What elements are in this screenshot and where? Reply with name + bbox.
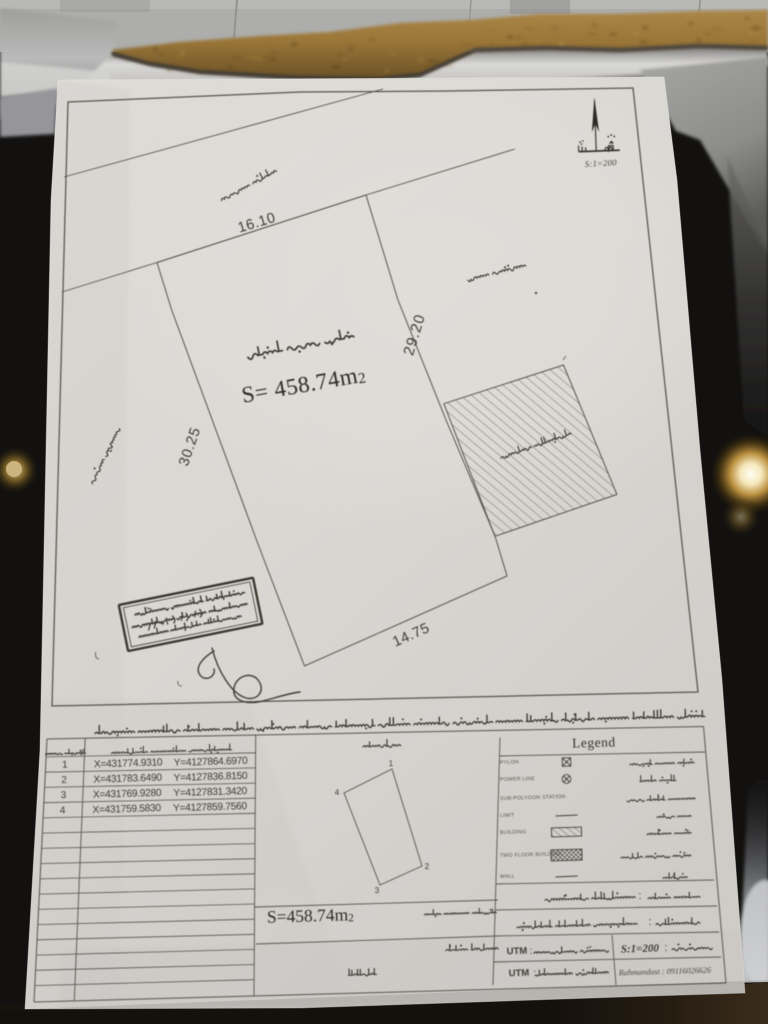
svg-text:UTM: UTM: [508, 968, 529, 980]
svg-text:1: 1: [62, 760, 68, 771]
svg-text:X=431774.9310: X=431774.9310: [94, 757, 163, 770]
svg-text:S=458.74m2: S=458.74m2: [267, 904, 354, 927]
svg-text::: :: [638, 890, 641, 902]
svg-text:Y=4127859.7560: Y=4127859.7560: [173, 801, 248, 814]
svg-text:Y=4127836.8150: Y=4127836.8150: [173, 771, 248, 784]
svg-text:LIMIT: LIMIT: [500, 813, 515, 819]
svg-text:S:1=200: S:1=200: [585, 157, 618, 169]
svg-text:WALL: WALL: [500, 874, 515, 880]
svg-text:1: 1: [388, 758, 393, 768]
svg-text:BUILDING: BUILDING: [500, 829, 527, 836]
svg-text::: :: [529, 946, 532, 957]
svg-text:2: 2: [61, 775, 67, 786]
svg-text:3: 3: [60, 790, 66, 801]
svg-text:3: 3: [374, 885, 379, 895]
svg-text::: :: [533, 968, 536, 979]
svg-text:X=431769.9280: X=431769.9280: [93, 788, 162, 801]
svg-text:Y=4127864.6970: Y=4127864.6970: [174, 756, 249, 769]
svg-text::: :: [648, 916, 651, 928]
svg-text:S:1=200: S:1=200: [621, 942, 660, 955]
svg-text:POWER LINE: POWER LINE: [500, 776, 536, 783]
svg-text:4: 4: [334, 787, 339, 797]
svg-text:2: 2: [424, 861, 429, 871]
svg-text:4: 4: [60, 805, 66, 816]
svg-text:UTM: UTM: [506, 946, 527, 958]
svg-text:Y=4127831.3420: Y=4127831.3420: [173, 786, 248, 799]
svg-text:X=431783.6490: X=431783.6490: [93, 773, 162, 786]
svg-text:PYLON: PYLON: [500, 759, 519, 766]
svg-text:X=431759.5830: X=431759.5830: [92, 803, 161, 816]
svg-text:Legend: Legend: [572, 734, 616, 750]
svg-text::: :: [664, 942, 667, 954]
